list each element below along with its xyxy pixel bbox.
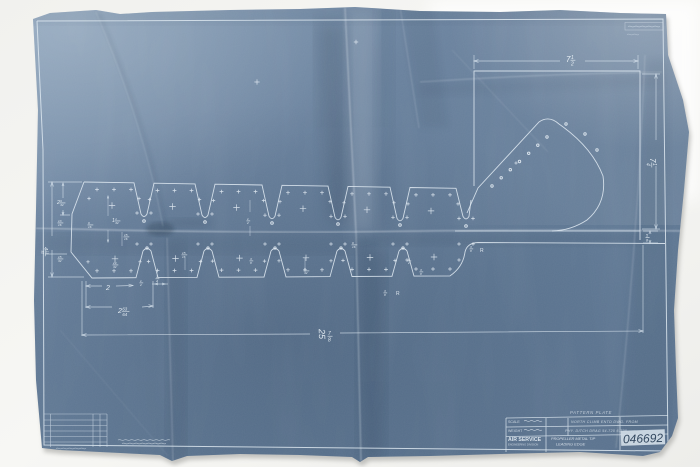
svg-text:16: 16 (124, 237, 128, 241)
svg-text:LEADING EDGE: LEADING EDGE (556, 442, 586, 447)
svg-text:2: 2 (570, 61, 574, 67)
svg-text:32: 32 (115, 221, 119, 225)
svg-text:2: 2 (246, 221, 249, 225)
svg-text:R: R (480, 248, 484, 254)
svg-text:32: 32 (304, 271, 308, 275)
svg-text:32: 32 (60, 203, 64, 207)
svg-text:32: 32 (113, 265, 117, 269)
svg-text:8: 8 (250, 261, 252, 265)
svg-text:1: 1 (156, 275, 158, 279)
svg-text:R: R (396, 291, 400, 297)
svg-text:32: 32 (58, 259, 62, 263)
svg-text:8: 8 (328, 337, 331, 343)
svg-text:13: 13 (45, 250, 49, 254)
svg-text:32: 32 (41, 250, 45, 254)
svg-text:63: 63 (122, 306, 127, 311)
svg-text:AIR SERVICE: AIR SERVICE (508, 437, 542, 443)
svg-text:2: 2 (407, 261, 410, 265)
svg-text:ENGINEERING DIVISION: ENGINEERING DIVISION (508, 443, 538, 447)
svg-text:4: 4 (156, 279, 158, 283)
svg-text:NORTH CLIMB ENTD DWG. FROM: NORTH CLIMB ENTD DWG. FROM (571, 420, 638, 424)
svg-text:8: 8 (470, 249, 472, 253)
svg-text:PATTERN PLATE: PATTERN PLATE (570, 410, 612, 415)
svg-text:16: 16 (352, 245, 356, 249)
svg-text:16: 16 (182, 255, 186, 259)
svg-text:64: 64 (122, 312, 127, 317)
svg-text:WEIGHT: WEIGHT (508, 429, 523, 433)
svg-text:2: 2 (117, 308, 122, 315)
svg-text:2: 2 (105, 285, 110, 292)
svg-text:PROPELLER METAL TIP: PROPELLER METAL TIP (551, 436, 596, 441)
svg-text:PHY. DITCH DRAG 54-720 6-700: PHY. DITCH DRAG 54-720 6-700 (565, 429, 627, 433)
svg-text:046692: 046692 (623, 431, 664, 446)
svg-text:8: 8 (420, 272, 422, 276)
svg-text:16: 16 (88, 225, 92, 229)
svg-text:SCALE: SCALE (508, 420, 520, 424)
svg-text:2: 2 (139, 283, 142, 287)
svg-text:25: 25 (317, 328, 327, 340)
svg-text:4: 4 (645, 163, 651, 166)
svg-text:8: 8 (384, 293, 386, 297)
svg-text:16: 16 (58, 223, 62, 227)
